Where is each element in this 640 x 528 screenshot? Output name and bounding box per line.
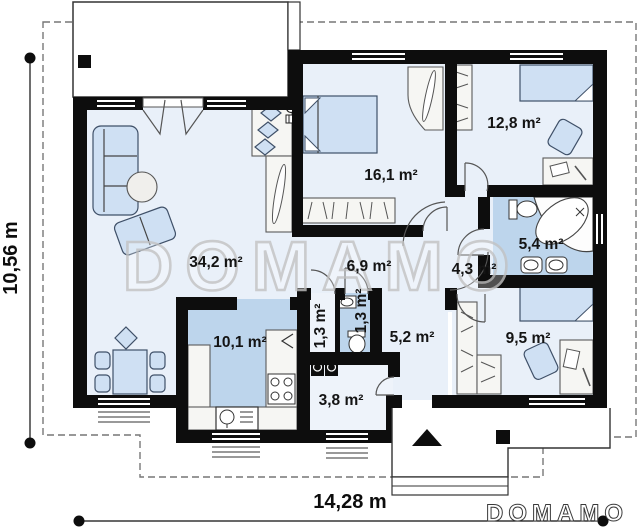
window bbox=[205, 97, 248, 110]
chair bbox=[150, 375, 165, 392]
room-label-pantry: 1,3 m² bbox=[312, 304, 329, 349]
wardrobe-bedroom-1 bbox=[302, 198, 395, 223]
floor-plan-canvas: DOMAMO 34,2 m² 16,1 m² 12,8 m² 5,4 m² 6,… bbox=[0, 0, 640, 528]
floor-plan: DOMAMO 34,2 m² 16,1 m² 12,8 m² 5,4 m² 6,… bbox=[0, 0, 640, 528]
room-label-bedroom3: 9,5 m² bbox=[506, 330, 551, 347]
bathroom-vent-window bbox=[593, 212, 607, 246]
window bbox=[95, 97, 137, 110]
window bbox=[210, 430, 262, 457]
dimension-left: 10,56 m bbox=[0, 53, 36, 449]
room-label-corridor: 6,9 m² bbox=[347, 258, 392, 275]
window bbox=[96, 395, 152, 422]
chair bbox=[150, 352, 165, 369]
terrace-pillar bbox=[78, 55, 91, 68]
porch bbox=[392, 408, 610, 495]
dimension-width-label: 14,28 m bbox=[313, 491, 386, 513]
room-label-living: 34,2 m² bbox=[189, 254, 242, 271]
room-label-wc: 1,3 m² bbox=[353, 289, 370, 334]
porch-pillar bbox=[496, 430, 510, 444]
desk-bedroom-2 bbox=[543, 158, 593, 185]
bed-single-bedroom-2 bbox=[520, 65, 593, 101]
room-label-utility: 3,8 m² bbox=[319, 392, 364, 409]
window bbox=[350, 50, 407, 64]
window bbox=[508, 50, 565, 64]
sink-icon bbox=[216, 407, 258, 430]
chair bbox=[95, 352, 110, 369]
room-label-hall: 4,3 m² bbox=[452, 261, 497, 278]
brand-logo: DOMAMO bbox=[486, 500, 628, 527]
sofa-large bbox=[93, 126, 138, 215]
desk-bedroom-3 bbox=[560, 340, 593, 394]
coffee-table bbox=[127, 172, 157, 202]
tall-cabinet bbox=[266, 156, 292, 232]
room-label-bedroom1: 16,1 m² bbox=[364, 167, 417, 184]
bed-double bbox=[303, 96, 377, 153]
cooktop-icon bbox=[268, 374, 295, 404]
chair bbox=[95, 375, 110, 392]
room-label-bedroom2: 12,8 m² bbox=[487, 115, 540, 132]
room-label-kitchen: 10,1 m² bbox=[213, 334, 266, 351]
bed-single-bedroom-3 bbox=[520, 285, 593, 321]
room-label-entry: 5,2 m² bbox=[390, 329, 435, 346]
window bbox=[324, 430, 370, 458]
room-label-bathroom: 5,4 m² bbox=[519, 236, 564, 253]
terrace bbox=[73, 2, 300, 97]
dimension-height-label: 10,56 m bbox=[0, 221, 22, 294]
dining-table bbox=[113, 350, 147, 394]
